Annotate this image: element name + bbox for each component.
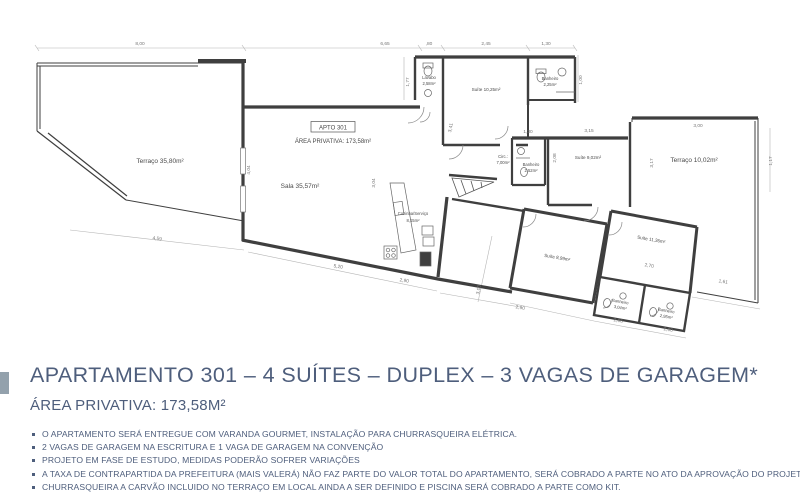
dim-label: 3,15 bbox=[584, 128, 594, 134]
apto-label: APTO 301 bbox=[319, 126, 348, 132]
page-title: APARTAMENTO 301 – 4 SUÍTES – DUPLEX – 3 … bbox=[30, 363, 790, 388]
dim-label: 4,04 bbox=[246, 165, 252, 175]
note-item: PROJETO EM FASE DE ESTUDO, MEDIDAS PODER… bbox=[31, 454, 800, 467]
terrace-walls bbox=[37, 61, 246, 221]
note-item: 2 VAGAS DE GARAGEM NA ESCRITURA E 1 VAGA… bbox=[31, 441, 800, 454]
page-edge-accent bbox=[0, 372, 9, 394]
note-item: A TAXA DE CONTRAPARTIDA DA PREFEITURA (M… bbox=[31, 468, 800, 481]
room-area-banheiro-3: 3,04m² bbox=[613, 304, 627, 311]
room-label-suite-902: Suíte 9,02m² bbox=[575, 155, 602, 160]
flyer-page: Terraço 35,80m² APTO 301 ÁREA PRIVATIVA:… bbox=[0, 0, 800, 504]
room-label-suite-899: Suíte 8,99m² bbox=[544, 253, 571, 263]
note-item: O APARTAMENTO SERÁ ENTREGUE COM VARANDA … bbox=[31, 428, 800, 441]
dim-label: 2,08 bbox=[552, 153, 558, 163]
dim-label: 3,17 bbox=[649, 158, 655, 168]
dim-label: 1,61 bbox=[718, 278, 729, 286]
room-label-suite-1025: Suíte 10,25m² bbox=[472, 87, 501, 92]
area-privativa-label: ÁREA PRIVATIVA: 173,58m² bbox=[295, 138, 371, 145]
room-label-terraco1: Terraço 35,80m² bbox=[136, 158, 184, 165]
room-area-circ: 7,00m² bbox=[496, 160, 510, 165]
room-area-banheiro-2: 2,52m² bbox=[524, 168, 538, 173]
room-label-terraco2: Terraço 10,02m² bbox=[670, 157, 718, 164]
floor-plan-svg: Terraço 35,80m² APTO 301 ÁREA PRIVATIVA:… bbox=[0, 0, 800, 355]
note-item: CHURRASQUEIRA A CARVÃO INCLUIDO NO TERRA… bbox=[31, 481, 800, 494]
dim-label: 1,30 bbox=[523, 129, 533, 135]
dim-label: 8,00 bbox=[135, 41, 145, 47]
dim-label: 1,17 bbox=[768, 156, 774, 166]
area-privativa-heading: ÁREA PRIVATIVA: 173,58M² bbox=[30, 397, 226, 414]
dim-label: 6,65 bbox=[380, 41, 390, 47]
dim-label: 1,00 bbox=[578, 75, 584, 85]
room-label-lavabo: Lavabo bbox=[422, 75, 436, 80]
dim-label: 2,00 bbox=[663, 326, 674, 334]
dim-label: ,80 bbox=[426, 41, 433, 47]
stairs-icon bbox=[452, 178, 494, 197]
structural-walls bbox=[242, 57, 758, 331]
dim-label: 2,70 bbox=[644, 262, 655, 270]
room-label-circ: Circ.: bbox=[498, 154, 508, 159]
room-label-sala: Sala 35,57m² bbox=[281, 183, 320, 190]
dim-label: 3,04 bbox=[371, 178, 377, 188]
dim-label: 3,00 bbox=[693, 123, 703, 129]
dim-label: 3,41 bbox=[447, 122, 455, 133]
dimension-lines bbox=[35, 45, 770, 338]
notes-list: O APARTAMENTO SERÁ ENTREGUE COM VARANDA … bbox=[31, 428, 800, 494]
dim-label: 2,06 bbox=[613, 317, 624, 325]
dim-label: 1,30 bbox=[541, 41, 551, 47]
dim-label: 2,45 bbox=[481, 41, 491, 47]
dim-label: 1,77 bbox=[405, 77, 411, 87]
room-area-cozinha: 8,15m² bbox=[406, 218, 420, 223]
dim-label: 2,90 bbox=[515, 304, 526, 312]
room-label-cozinha: Cozinha/Serviço bbox=[398, 211, 429, 216]
room-area-banheiro-1: 2,25m² bbox=[543, 82, 557, 87]
room-area-lavabo: 2,58m² bbox=[422, 81, 436, 86]
room-area-banheiro-4: 2,95m² bbox=[659, 313, 673, 320]
floor-plan: Terraço 35,80m² APTO 301 ÁREA PRIVATIVA:… bbox=[0, 0, 800, 355]
dim-label: 4,59 bbox=[152, 235, 162, 242]
room-label-banheiro-1: Banheiro bbox=[542, 76, 559, 81]
room-label-suite-1136: Suíte 11,36m² bbox=[637, 235, 666, 245]
room-label-banheiro-2: Banheiro bbox=[523, 162, 540, 167]
